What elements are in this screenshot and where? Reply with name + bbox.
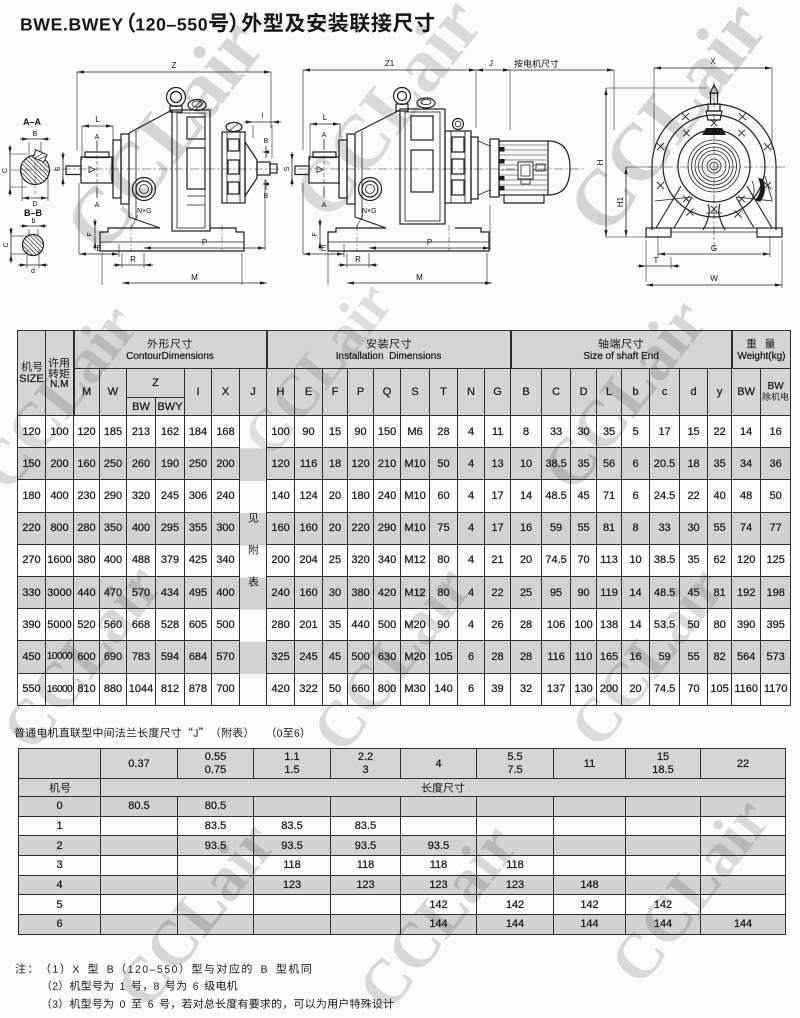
svg-text:H: H [596,159,605,165]
svg-text:N×G: N×G [362,208,377,215]
svg-text:A–A: A–A [23,117,42,127]
svg-text:B: B [264,193,269,200]
svg-text:J: J [489,59,493,68]
svg-text:l: l [262,113,264,120]
svg-text:T: T [654,256,659,265]
svg-text:R: R [130,255,136,264]
svg-text:N×G: N×G [137,208,152,215]
svg-text:Z1: Z1 [385,59,395,68]
svg-text:E: E [321,244,326,253]
svg-text:P: P [202,238,207,247]
svg-text:B: B [264,138,269,145]
svg-text:B: B [33,131,38,138]
svg-text:G: G [711,244,717,253]
svg-text:A: A [322,202,327,209]
svg-text:b: b [32,218,36,225]
svg-text:L: L [95,115,100,124]
svg-text:A: A [322,132,327,139]
svg-text:C: C [3,242,10,247]
svg-text:D: D [32,201,37,208]
svg-text:A: A [95,134,100,141]
svg-text:X: X [710,57,716,66]
svg-text:M: M [191,273,198,282]
svg-text:R: R [355,255,361,264]
svg-text:Z: Z [172,61,177,70]
svg-text:C: C [2,168,9,173]
svg-text:F: F [87,232,94,236]
svg-text:E: E [96,244,101,253]
svg-text:P: P [427,238,432,247]
svg-text:A: A [95,202,100,209]
svg-text:d: d [31,268,35,275]
svg-text:B–B: B–B [24,208,43,218]
svg-text:S: S [55,166,62,171]
svg-text:M: M [416,273,423,282]
svg-text:L: L [323,113,328,122]
svg-text:H1: H1 [616,196,625,207]
svg-text:W: W [710,274,718,283]
svg-text:S: S [284,166,291,171]
svg-text:F: F [312,232,319,236]
